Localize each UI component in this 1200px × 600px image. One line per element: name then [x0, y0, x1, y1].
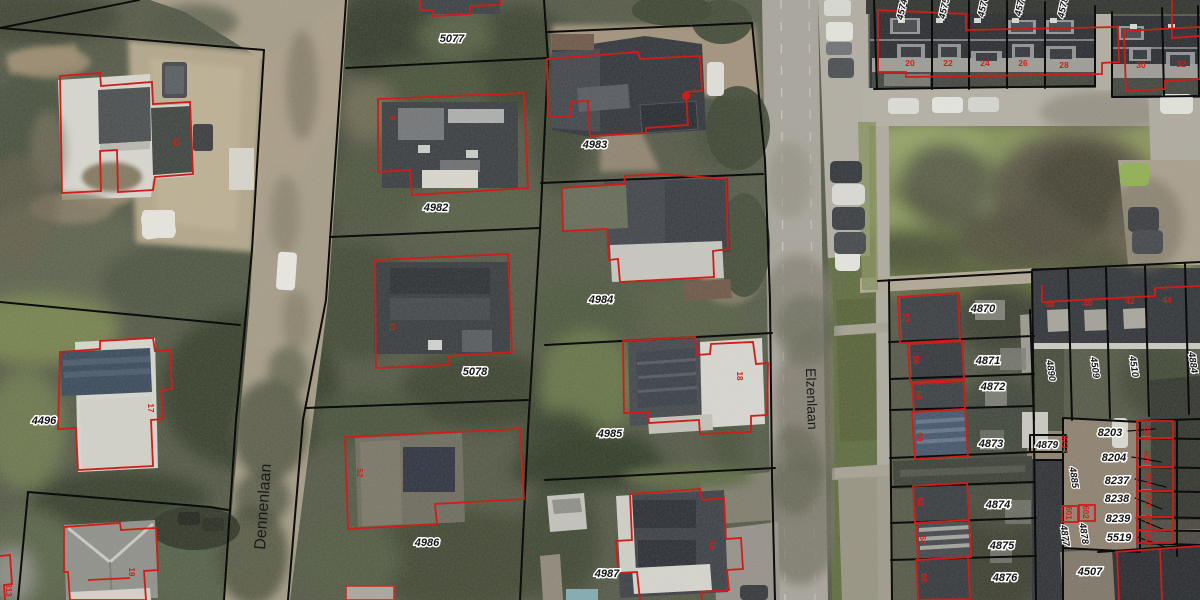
svg-text:4984: 4984: [588, 294, 613, 306]
svg-text:15: 15: [708, 541, 717, 550]
svg-text:600: 600: [1142, 450, 1151, 464]
svg-text:4987: 4987: [594, 568, 620, 580]
svg-text:40: 40: [1083, 298, 1093, 308]
svg-text:8234: 8234: [1060, 435, 1069, 453]
svg-text:4879: 4879: [1035, 440, 1059, 451]
svg-text:38: 38: [1045, 299, 1055, 309]
svg-text:11: 11: [172, 138, 181, 147]
svg-text:619: 619: [1143, 472, 1152, 486]
svg-text:313: 313: [4, 583, 13, 597]
svg-text:28: 28: [1059, 60, 1069, 70]
svg-text:8239: 8239: [1106, 513, 1131, 525]
svg-text:8203: 8203: [1098, 427, 1122, 439]
svg-text:8204: 8204: [1102, 452, 1126, 464]
svg-text:60: 60: [915, 433, 924, 442]
svg-text:52: 52: [355, 469, 364, 478]
svg-text:56: 56: [911, 356, 920, 365]
svg-text:618: 618: [1143, 494, 1152, 508]
svg-text:4871: 4871: [975, 355, 1000, 367]
svg-text:58: 58: [914, 391, 923, 400]
svg-text:4874: 4874: [985, 499, 1010, 511]
svg-text:4876: 4876: [992, 572, 1018, 584]
svg-text:4985: 4985: [597, 428, 623, 440]
svg-text:17: 17: [146, 404, 155, 413]
svg-text:52: 52: [901, 314, 910, 323]
svg-text:19: 19: [127, 568, 136, 577]
svg-text:64: 64: [918, 536, 927, 545]
svg-text:4873: 4873: [978, 438, 1003, 450]
svg-text:18: 18: [735, 372, 744, 381]
svg-text:617: 617: [1143, 514, 1152, 528]
svg-text:8238: 8238: [1105, 493, 1130, 505]
svg-text:5078: 5078: [463, 366, 488, 378]
svg-text:601: 601: [1064, 506, 1073, 520]
svg-text:5077: 5077: [440, 33, 465, 45]
svg-text:4870: 4870: [970, 303, 996, 315]
svg-text:5519: 5519: [1107, 532, 1132, 544]
svg-text:22: 22: [943, 58, 953, 68]
svg-text:44: 44: [1162, 295, 1172, 305]
svg-text:Elzenlaan: Elzenlaan: [803, 368, 821, 430]
svg-text:4986: 4986: [414, 537, 440, 549]
svg-text:26: 26: [1018, 58, 1028, 68]
svg-text:32: 32: [1176, 59, 1186, 69]
svg-text:4983: 4983: [582, 139, 607, 151]
svg-text:602: 602: [1081, 505, 1090, 519]
svg-text:20: 20: [905, 58, 915, 68]
svg-text:30: 30: [1136, 60, 1146, 70]
svg-text:4507: 4507: [1077, 566, 1103, 578]
svg-text:600: 600: [1142, 427, 1151, 441]
svg-text:8237: 8237: [1105, 475, 1130, 487]
svg-text:616: 616: [1143, 533, 1152, 547]
svg-text:4875: 4875: [989, 540, 1015, 552]
svg-text:51: 51: [387, 323, 396, 332]
svg-text:42: 42: [1125, 296, 1135, 306]
svg-text:4872: 4872: [980, 381, 1005, 393]
svg-text:4496: 4496: [31, 415, 57, 427]
svg-text:62: 62: [916, 498, 925, 507]
svg-text:66: 66: [919, 574, 928, 583]
svg-text:4982: 4982: [423, 202, 448, 214]
svg-text:24: 24: [980, 58, 990, 68]
svg-text:9: 9: [388, 116, 397, 121]
